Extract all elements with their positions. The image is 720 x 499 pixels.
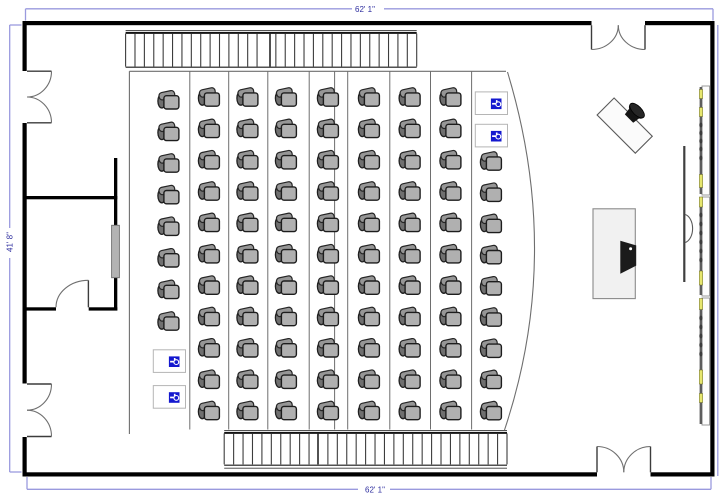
svg-text:62' 1": 62' 1"	[355, 5, 375, 14]
svg-text:41' 8": 41' 8"	[6, 232, 15, 252]
svg-text:62' 1": 62' 1"	[365, 485, 385, 494]
